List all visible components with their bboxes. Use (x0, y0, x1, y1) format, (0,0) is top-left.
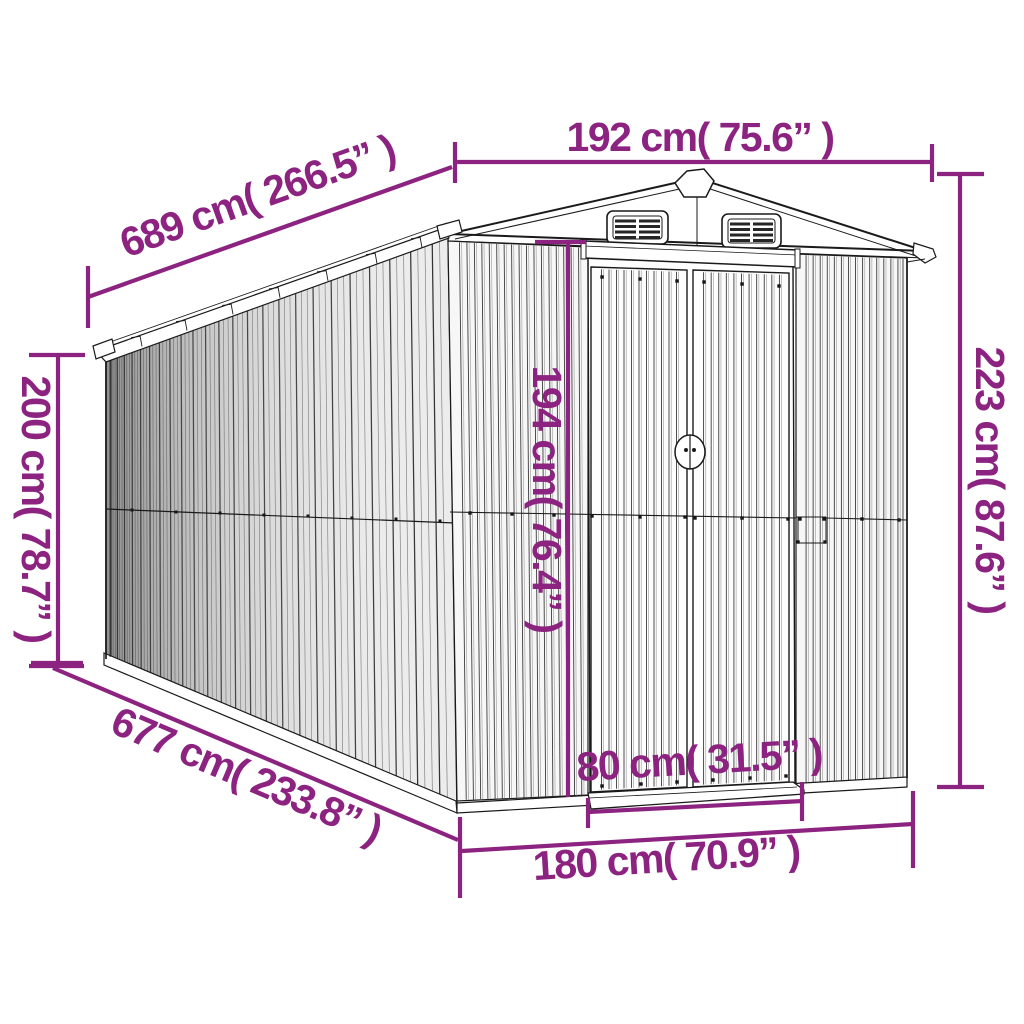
dim-side-length-label: 689 cm( 266.5” ) (114, 125, 401, 266)
gable-vent-right (722, 214, 781, 248)
shed-diagram-canvas: 192 cm( 75.6” ) 689 cm( 266.5” ) 200 cm(… (0, 0, 1024, 1024)
dim-top-width-label: 192 cm( 75.6” ) (567, 114, 834, 160)
shed-drawing (93, 169, 936, 813)
roof-apex-cap (675, 169, 714, 197)
sliding-doors (588, 258, 795, 793)
dim-left-height-label: 200 cm( 78.7” ) (13, 376, 59, 643)
left-eave-cap (437, 220, 462, 239)
gable-vent-left (607, 211, 668, 244)
dim-base-width-label: 180 cm( 70.9” ) (532, 827, 801, 889)
product-dimension-diagram: 192 cm( 75.6” ) 689 cm( 266.5” ) 200 cm(… (0, 0, 1024, 1024)
dim-door-height-label: 194 cm( 76.4” ) (524, 366, 570, 633)
dim-right-height-label: 223 cm( 87.6” ) (967, 347, 1013, 614)
door-handle (675, 435, 705, 469)
